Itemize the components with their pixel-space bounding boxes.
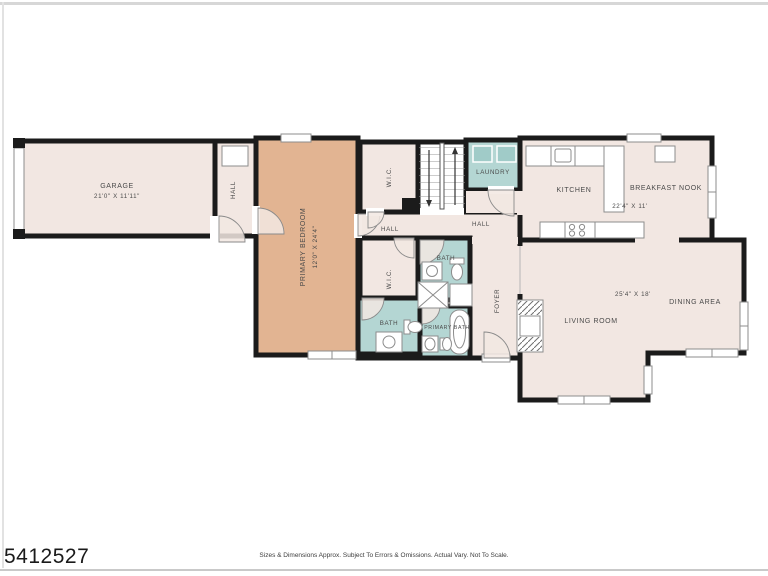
bathtub-icon	[450, 310, 469, 354]
toilet-icon	[443, 338, 452, 351]
primary-bedroom-label: PRIMARY BEDROOM	[300, 208, 307, 287]
fireplace	[517, 300, 543, 352]
primary-bedroom-dims: 12'0" X 24'4"	[312, 226, 319, 269]
garage-door-band	[14, 148, 24, 230]
wall-cabinet	[655, 146, 675, 162]
hall-garage-label: HALL	[230, 181, 237, 199]
kitchen-label: KITCHEN	[557, 187, 592, 194]
living-room-label: LIVING ROOM	[564, 318, 617, 325]
window	[686, 349, 738, 357]
hall-bedroom-label: HALL	[381, 226, 399, 233]
toilet-icon	[408, 322, 422, 333]
wall-stub	[13, 229, 25, 239]
laundry-label: LAUNDRY	[476, 169, 510, 176]
primary-bath-label: PRIMARY BATH	[424, 325, 470, 331]
breakfast-nook-dims: 22'4" X 11'	[612, 203, 647, 210]
opening-hall-foyer	[472, 237, 518, 244]
vanity-sink-icon	[422, 262, 442, 280]
washer-icon	[473, 146, 492, 162]
window	[308, 351, 356, 359]
fireplace-hatch	[518, 301, 542, 315]
hall-closet	[222, 146, 248, 166]
fireplace-hatch	[518, 337, 542, 351]
window	[558, 396, 610, 404]
room-living-dining	[520, 240, 744, 400]
footer-divider	[0, 569, 768, 571]
kitchen-island-counter	[540, 222, 644, 238]
hall-main-label: HALL	[472, 221, 490, 228]
window	[644, 366, 652, 394]
toilet-icon	[452, 264, 463, 280]
window	[708, 166, 716, 218]
bath-lower-label: BATH	[380, 320, 398, 327]
wall-post	[402, 198, 418, 214]
window	[281, 134, 311, 142]
disclaimer-text: Sizes & Dimensions Approx. Subject To Er…	[0, 552, 768, 559]
opening-hall-kitchen	[517, 191, 525, 215]
window	[740, 302, 748, 350]
bath-hall-label: BATH	[437, 255, 455, 262]
room-primary-bedroom	[256, 138, 358, 355]
closets	[418, 282, 472, 308]
floor-plan-page: GARAGE 21'0" X 11'11" HALL PRIMARY BEDRO…	[0, 0, 768, 576]
closet	[450, 284, 472, 306]
wall-stub	[13, 138, 25, 148]
firebox	[520, 316, 540, 336]
living-room-dims: 25'4" X 18'	[615, 291, 651, 298]
stair-stringer	[440, 143, 444, 209]
dryer-icon	[497, 146, 516, 162]
floor-plan-drawing: GARAGE 21'0" X 11'11" HALL PRIMARY BEDRO…	[0, 0, 768, 576]
vanity-sink-icon	[376, 332, 402, 352]
window	[627, 134, 661, 142]
door-gap	[210, 216, 220, 242]
wic-upper-label: W.I.C.	[386, 167, 393, 187]
wic-lower-label: W.I.C.	[386, 269, 393, 289]
garage-label: GARAGE	[100, 183, 134, 190]
breakfast-nook-label: BREAKFAST NOOK	[630, 185, 702, 192]
garage-dims: 21'0" X 11'11"	[94, 193, 140, 200]
foyer-label: FOYER	[494, 289, 501, 313]
dining-area-label: DINING AREA	[669, 299, 721, 306]
